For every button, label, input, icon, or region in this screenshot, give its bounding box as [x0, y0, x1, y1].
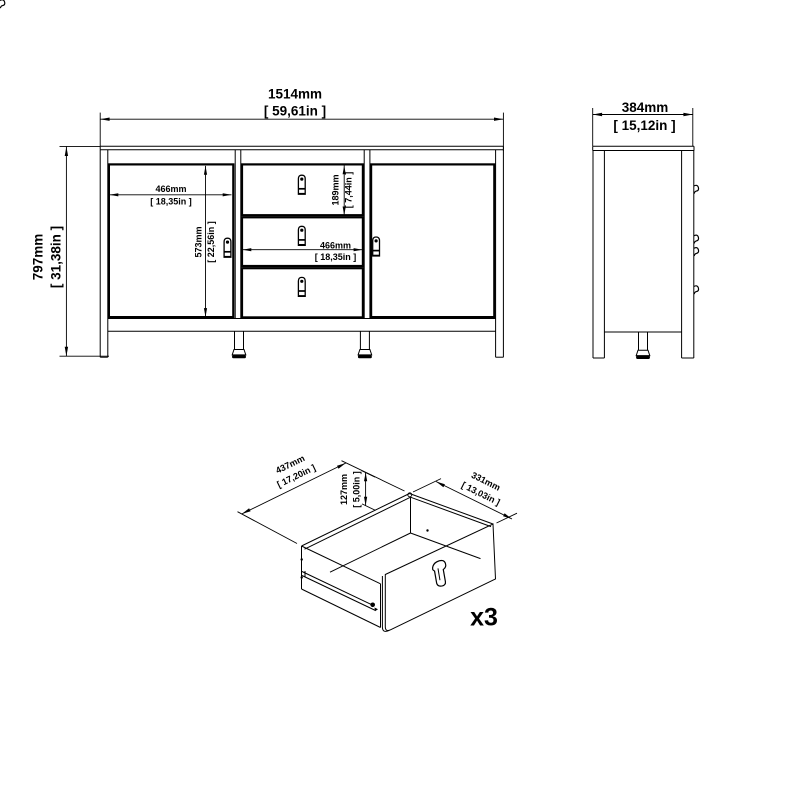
svg-text:384mm: 384mm: [622, 100, 669, 115]
svg-text:[ 22,56in ]: [ 22,56in ]: [206, 221, 216, 263]
svg-text:[ 59,61in ]: [ 59,61in ]: [264, 104, 326, 119]
svg-text:573mm: 573mm: [194, 226, 204, 257]
svg-text:x3: x3: [470, 604, 498, 632]
svg-text:797mm: 797mm: [31, 234, 46, 281]
svg-text:[ 5,00in ]: [ 5,00in ]: [352, 471, 362, 508]
svg-text:[ 18,35in ]: [ 18,35in ]: [315, 252, 357, 262]
svg-text:1514mm: 1514mm: [268, 87, 322, 102]
svg-text:[ 7,44in ]: [ 7,44in ]: [344, 172, 354, 209]
svg-text:[ 15,12in ]: [ 15,12in ]: [613, 118, 675, 133]
svg-text:127mm: 127mm: [339, 474, 349, 505]
svg-text:[ 31,38in ]: [ 31,38in ]: [49, 226, 64, 288]
svg-text:466mm: 466mm: [155, 184, 186, 194]
svg-text:189mm: 189mm: [331, 174, 341, 205]
svg-text:466mm: 466mm: [320, 241, 351, 251]
svg-text:[ 18,35in ]: [ 18,35in ]: [150, 197, 192, 207]
